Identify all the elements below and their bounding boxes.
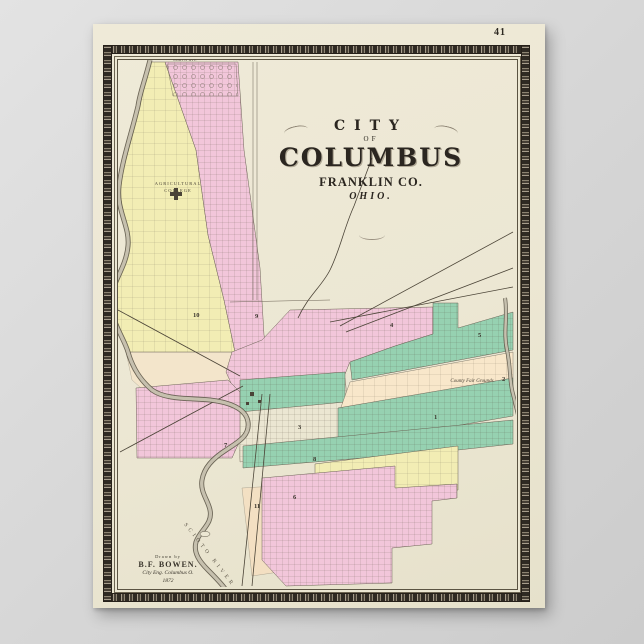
ward-number-4: 4 — [390, 322, 393, 329]
ward-number-7: 7 — [224, 442, 227, 449]
title-of: OF — [276, 135, 466, 143]
title-ohio: OHIO. — [276, 191, 466, 203]
north-street-label: NORTH AVE — [155, 58, 215, 62]
attribution-role: City Eng. Columbus O. — [116, 570, 220, 576]
ornate-border-top — [103, 45, 530, 54]
agricultural-college-label: AGRICULTURAL COLLEGE — [131, 181, 225, 195]
ornate-border-bottom — [103, 593, 530, 602]
ward-number-3: 3 — [298, 424, 301, 431]
ornate-border-right — [521, 45, 530, 602]
map-sheet-paper: 41 CITY OF COLUMBUS FRANKLIN CO. OHIO. A… — [93, 24, 545, 608]
poster-photo: { "poster": { "page_number": "41" }, "ti… — [0, 0, 644, 644]
ornate-border-left — [103, 45, 112, 602]
ward-number-1: 1 — [434, 414, 437, 421]
attribution-name: B.F. BOWEN. — [116, 560, 220, 569]
orchard-grove-block — [167, 64, 238, 96]
ward-number-8: 8 — [313, 456, 316, 463]
ward-number-9: 9 — [255, 313, 258, 320]
attribution-year: 1872 — [116, 578, 220, 584]
plate-number: 41 — [494, 27, 524, 39]
flourish-bottom — [359, 230, 385, 240]
ward-number-5: 5 — [478, 332, 481, 339]
title-cartouche: CITY OF COLUMBUS FRANKLIN CO. OHIO. — [276, 118, 466, 203]
attribution-block: Drawn by B.F. BOWEN. City Eng. Columbus … — [116, 554, 220, 584]
ward-number-10: 10 — [193, 312, 200, 319]
ward-number-2: 2 — [502, 376, 505, 383]
title-columbus: COLUMBUS — [276, 144, 466, 173]
ward-number-6: 6 — [293, 494, 296, 501]
title-franklin-co: FRANKLIN CO. — [276, 175, 466, 189]
attribution-drawn-by: Drawn by — [116, 554, 220, 559]
river-island — [200, 531, 210, 536]
ward-number-11: 11 — [254, 503, 260, 510]
